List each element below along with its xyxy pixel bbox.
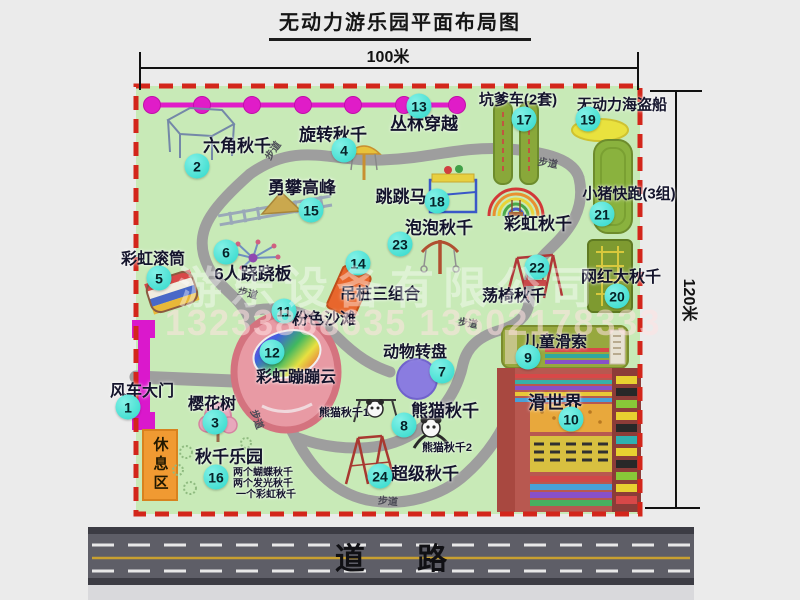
park-layout-poster: 无动力游乐园平面布局图 100米 120米 道 路 游乐设备有限公司 13233… (0, 0, 800, 600)
road-label: 道 路 (335, 534, 469, 578)
piggy-run-track-icon (594, 140, 632, 233)
pirate-ship-icon (572, 119, 628, 141)
rest-area-icon (143, 430, 177, 500)
slide-world-icon (497, 368, 641, 512)
phone-watermark: 13233868635 13602178333 (165, 302, 661, 344)
animal-turntable-icon (397, 359, 437, 399)
height-dimension-label: 120米 (679, 279, 703, 322)
width-dimension-label: 100米 (367, 43, 410, 67)
page-title: 无动力游乐园平面布局图 (269, 6, 531, 41)
